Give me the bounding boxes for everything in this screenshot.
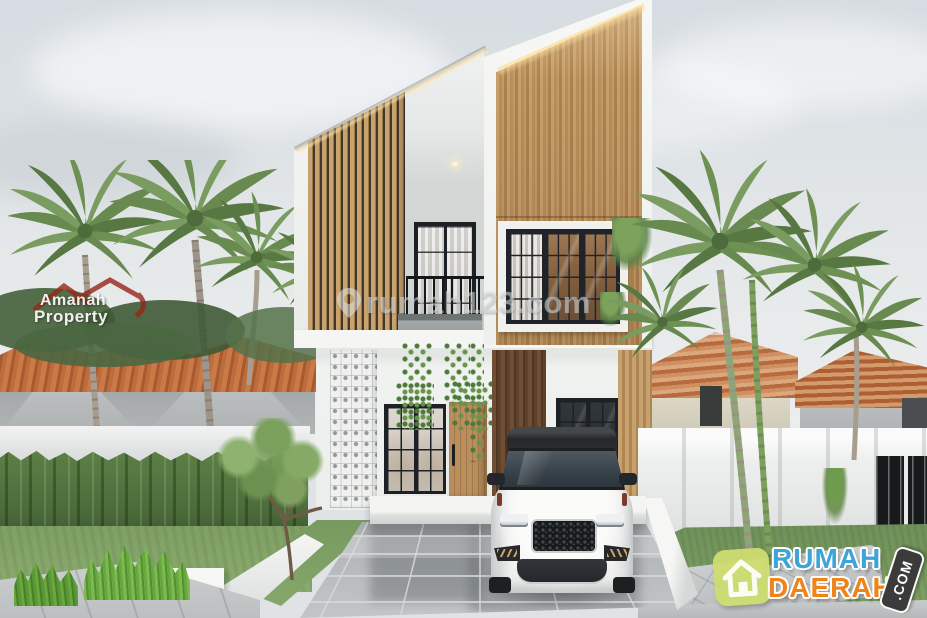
car-wheel-right bbox=[613, 577, 635, 593]
car-mirror-left bbox=[487, 473, 505, 485]
car-headlight-left bbox=[500, 514, 528, 527]
vent-trim bbox=[607, 549, 627, 557]
watermark-text: rumah123.com bbox=[366, 285, 591, 321]
location-pin-icon bbox=[336, 287, 362, 319]
car-side-marker bbox=[622, 493, 627, 506]
watermark-text: Property bbox=[34, 307, 108, 327]
watermark-text: RUMAH bbox=[772, 543, 881, 575]
watermark-text: .COM bbox=[888, 558, 916, 602]
house-icon bbox=[712, 547, 772, 607]
architectural-render-photo: Amanah Property rumah123.com RUMAH DAERA… bbox=[0, 0, 927, 618]
car-mirror-right bbox=[619, 473, 637, 485]
car-grille bbox=[531, 519, 597, 553]
white-suv bbox=[487, 427, 637, 602]
watermark-rumah-daerah: RUMAH DAERAH .COM bbox=[700, 541, 924, 615]
car-headlight-right bbox=[596, 514, 624, 527]
watermark-text: DAERAH bbox=[768, 572, 894, 604]
vent-trim bbox=[497, 549, 517, 557]
small-tree-canopy bbox=[212, 418, 334, 526]
watermark-rumah123: rumah123.com bbox=[336, 282, 636, 324]
car-wheel-left bbox=[489, 577, 511, 593]
com-badge: .COM bbox=[878, 545, 926, 615]
car-side-marker bbox=[497, 493, 502, 506]
car-bumper bbox=[517, 559, 607, 582]
watermark-amanah-property: Amanah Property bbox=[26, 272, 176, 334]
